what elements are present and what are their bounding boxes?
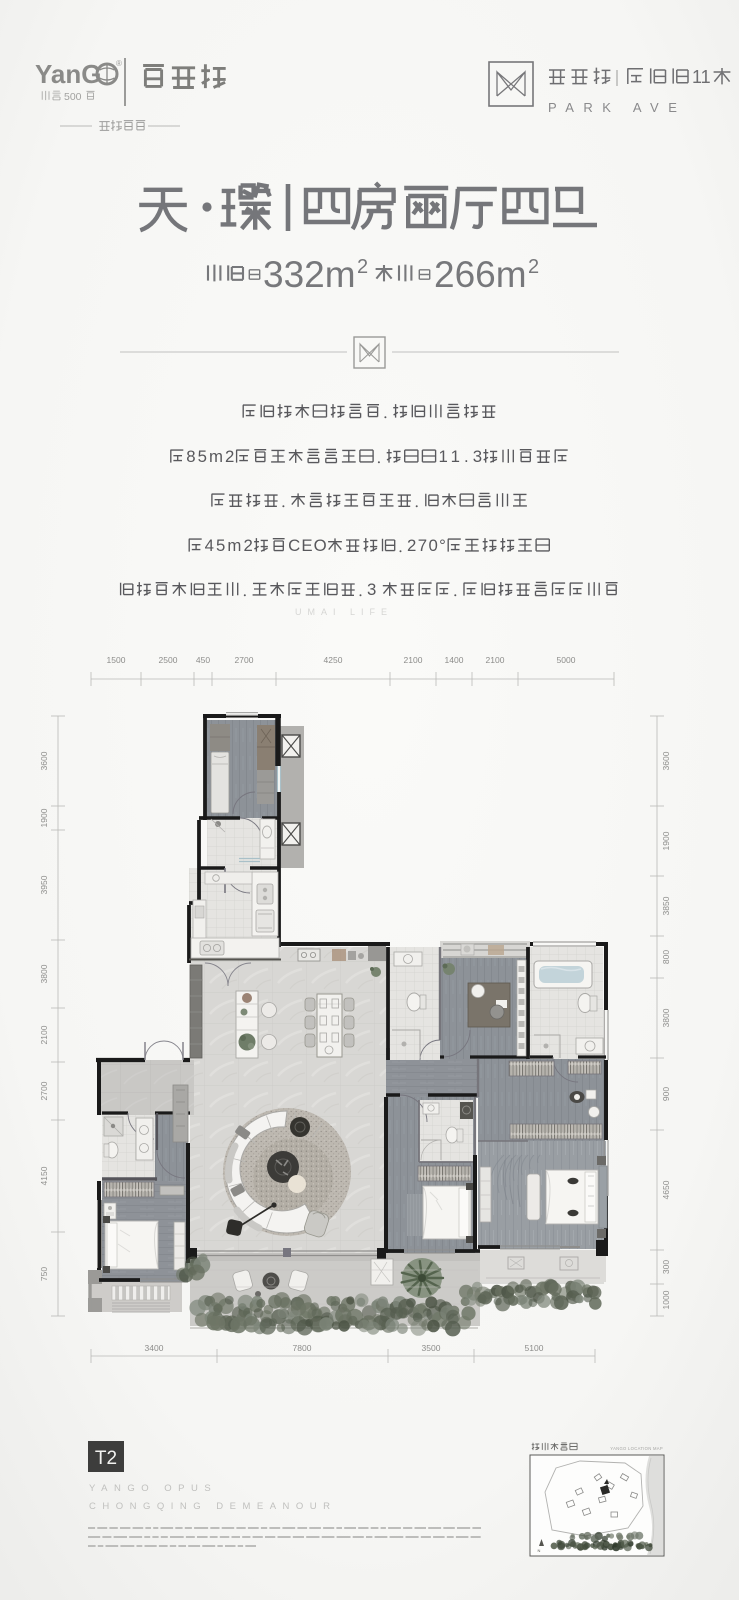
- svg-text:N: N: [538, 1548, 541, 1553]
- svg-text:1000: 1000: [661, 1290, 671, 1309]
- svg-text:1400: 1400: [445, 655, 464, 665]
- svg-text:2100: 2100: [404, 655, 423, 665]
- svg-text:85m2: 85m2: [186, 447, 234, 466]
- svg-text:3850: 3850: [661, 896, 671, 915]
- svg-text:YanG: YanG: [35, 59, 101, 89]
- svg-text:T2: T2: [95, 1448, 117, 1469]
- svg-text:PARK AVE: PARK AVE: [548, 100, 686, 115]
- svg-text:2700: 2700: [39, 1081, 49, 1100]
- svg-text:YANGO LOCATION MAP: YANGO LOCATION MAP: [610, 1446, 663, 1451]
- svg-text:1900: 1900: [661, 831, 671, 850]
- svg-text:1900: 1900: [39, 808, 49, 827]
- svg-text:CHONGQING DEMEANOUR: CHONGQING DEMEANOUR: [89, 1501, 337, 1512]
- svg-text:270°: 270°: [407, 536, 446, 555]
- svg-text:1500: 1500: [107, 655, 126, 665]
- svg-text:2: 2: [357, 256, 368, 278]
- svg-text:3950: 3950: [39, 875, 49, 894]
- svg-text:300: 300: [661, 1260, 671, 1274]
- svg-text:3500: 3500: [422, 1343, 441, 1353]
- svg-text:11: 11: [692, 67, 711, 87]
- svg-text:2: 2: [528, 256, 539, 278]
- svg-text:266m: 266m: [434, 254, 527, 295]
- svg-text:5000: 5000: [557, 655, 576, 665]
- svg-text:450: 450: [196, 655, 210, 665]
- svg-text:3800: 3800: [39, 964, 49, 983]
- svg-text:3600: 3600: [661, 751, 671, 770]
- svg-text:2100: 2100: [486, 655, 505, 665]
- svg-text:750: 750: [39, 1267, 49, 1281]
- svg-text:2100: 2100: [39, 1025, 49, 1044]
- svg-text:CEO: CEO: [288, 536, 327, 555]
- svg-text:7800: 7800: [293, 1343, 312, 1353]
- svg-text:3: 3: [367, 580, 376, 599]
- svg-text:900: 900: [661, 1087, 671, 1101]
- svg-text:800: 800: [661, 950, 671, 964]
- svg-text:4150: 4150: [39, 1166, 49, 1185]
- svg-text:332m: 332m: [263, 254, 356, 295]
- svg-text:500: 500: [64, 91, 82, 103]
- svg-text:®: ®: [116, 59, 122, 68]
- svg-text:5100: 5100: [525, 1343, 544, 1353]
- svg-text:4650: 4650: [661, 1180, 671, 1199]
- svg-text:2700: 2700: [235, 655, 254, 665]
- svg-text:3400: 3400: [145, 1343, 164, 1353]
- svg-text:45m2: 45m2: [205, 536, 253, 555]
- svg-text:4250: 4250: [324, 655, 343, 665]
- svg-text:3600: 3600: [39, 751, 49, 770]
- svg-text:2500: 2500: [159, 655, 178, 665]
- svg-text:3800: 3800: [661, 1008, 671, 1027]
- svg-text:YANGO OPUS: YANGO OPUS: [89, 1483, 217, 1494]
- svg-text:UMAI LIFE: UMAI LIFE: [295, 607, 393, 617]
